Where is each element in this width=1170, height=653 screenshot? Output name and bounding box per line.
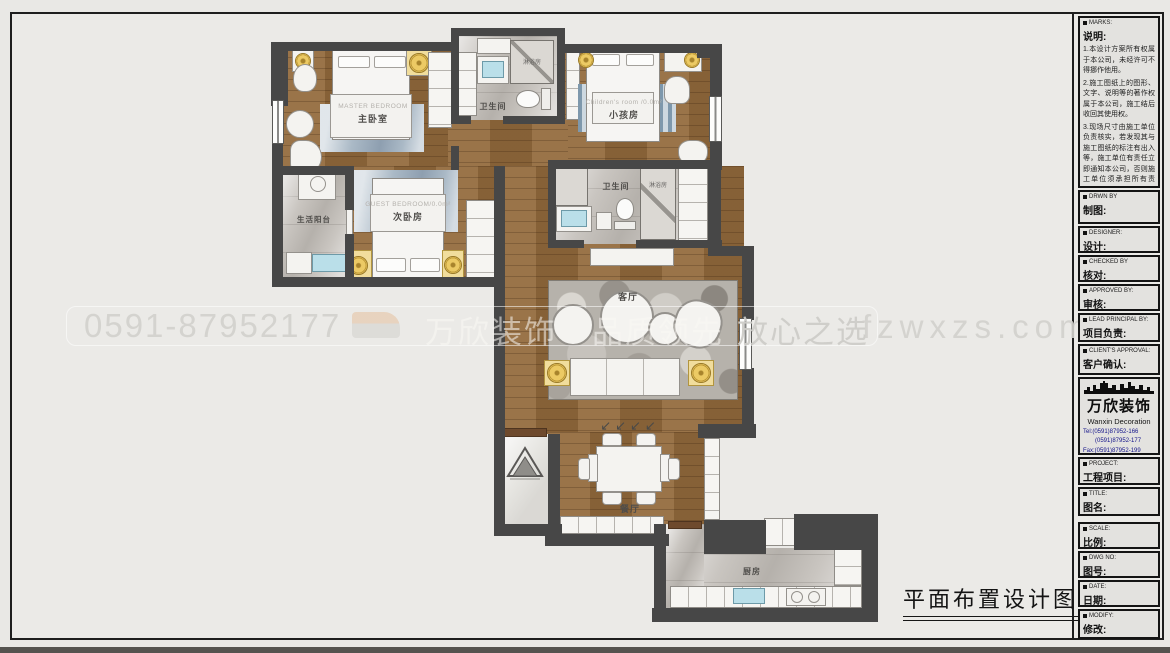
field-label-en: LEAD PRINCIPAL BY: bbox=[1089, 317, 1148, 323]
kitchen-counter bbox=[670, 586, 862, 608]
bath2-toilet-tank bbox=[614, 221, 636, 230]
children-chair bbox=[664, 76, 690, 104]
children-pillow bbox=[592, 54, 620, 66]
bullet-icon bbox=[1083, 527, 1087, 531]
drawing-sheet: ↙↙↙↙ bbox=[0, 0, 1170, 653]
wall-segment bbox=[451, 116, 471, 124]
window-bottom-edge bbox=[0, 647, 1170, 653]
living-lamp-icon bbox=[691, 363, 711, 383]
shower-room-2 bbox=[640, 166, 676, 240]
wall-segment bbox=[652, 608, 878, 622]
wall-segment bbox=[283, 42, 455, 51]
master-pillow bbox=[338, 56, 370, 68]
master-pillow bbox=[374, 56, 406, 68]
field-header: CHECKED BY bbox=[1083, 259, 1155, 265]
living-label: 客厅 bbox=[618, 290, 638, 303]
living-lamp-icon bbox=[547, 363, 567, 383]
wall-segment bbox=[704, 520, 766, 554]
titleblock-field-modify: MODIFY: 修改: bbox=[1078, 609, 1160, 639]
note-2: 2.施工图纸上的图形、文字、说明等的著作权属于本公司，施工结后收回其使用权。 bbox=[1083, 79, 1155, 121]
wall-segment bbox=[794, 514, 864, 550]
window bbox=[272, 100, 284, 144]
titleblock-field-dwg-no: DWG NO: 图号: bbox=[1078, 551, 1160, 578]
dining-chair bbox=[668, 458, 680, 480]
wall-segment bbox=[272, 42, 283, 102]
kitchen-tall-cabinet bbox=[834, 548, 862, 586]
wall-segment bbox=[560, 44, 712, 53]
balcony-cabinet bbox=[286, 252, 312, 274]
children-pillow bbox=[626, 54, 654, 66]
bullet-icon bbox=[1083, 492, 1087, 496]
dining-sideboard bbox=[560, 516, 664, 534]
dining-table bbox=[596, 446, 662, 492]
wall-segment bbox=[345, 166, 354, 210]
living-sofa bbox=[570, 358, 680, 396]
wall-segment bbox=[708, 160, 721, 248]
titleblock-field-scale: SCALE: 比例: bbox=[1078, 522, 1160, 549]
field-label-zh: 客户确认: bbox=[1083, 356, 1155, 371]
field-label-zh: 修改: bbox=[1083, 621, 1155, 636]
field-header: DESIGNER: bbox=[1083, 230, 1155, 236]
field-label-en: PROJECT: bbox=[1089, 461, 1118, 467]
bullet-icon bbox=[1083, 195, 1087, 199]
bath2-sink bbox=[561, 210, 587, 227]
marks-header: MARKS: bbox=[1083, 20, 1155, 26]
kitchen-label: 厨房 bbox=[743, 566, 761, 577]
field-label-en: DATE: bbox=[1089, 584, 1106, 590]
field-header: DATE: bbox=[1083, 584, 1155, 590]
field-header: CLIENT'S APPROVAL: bbox=[1083, 348, 1155, 354]
living-chair bbox=[552, 304, 594, 346]
titleblock-field-designer: DESIGNER: 设计: bbox=[1078, 226, 1160, 253]
bullet-icon bbox=[1083, 260, 1087, 264]
bath2-toilet-icon bbox=[616, 198, 634, 220]
skyline-logo-icon bbox=[1084, 381, 1154, 394]
shower1-label: 淋浴房 bbox=[523, 57, 541, 66]
entrance-arrow-icon bbox=[506, 446, 544, 482]
titleblock-field-client-approval: CLIENT'S APPROVAL: 客户确认: bbox=[1078, 344, 1160, 375]
bath1-label: 卫生间 bbox=[480, 101, 507, 112]
balcony-label: 生活阳台 bbox=[297, 214, 331, 225]
wall-segment bbox=[710, 44, 722, 98]
wall-segment bbox=[548, 160, 721, 169]
field-label-en: TITLE: bbox=[1089, 491, 1107, 497]
field-header: PROJECT: bbox=[1083, 461, 1155, 467]
titleblock-field-title: TITLE: 图名: bbox=[1078, 487, 1160, 516]
bath2-closet bbox=[678, 166, 708, 242]
field-header: MODIFY: bbox=[1083, 613, 1155, 619]
entry-door-threshold bbox=[503, 428, 547, 437]
guest-label: 次卧房 bbox=[393, 210, 423, 223]
marks-label-zh: 说明: bbox=[1083, 28, 1155, 43]
contact-lines: Tel:(0591)87952-166 (0591)87952-177 Fax:… bbox=[1083, 428, 1155, 455]
children-lamp-icon bbox=[578, 52, 594, 68]
field-label-en: APPROVED BY: bbox=[1089, 288, 1133, 294]
field-header: DRWN BY bbox=[1083, 194, 1155, 200]
master-side-table bbox=[286, 110, 314, 138]
master-chair bbox=[293, 64, 317, 92]
field-header: SCALE: bbox=[1083, 526, 1155, 532]
titleblock-field-drawn-by: DRWN BY 制图: bbox=[1078, 190, 1160, 224]
guest-lamp-icon bbox=[444, 256, 462, 274]
titleblock-field-project: PROJECT: 工程项目: bbox=[1078, 457, 1160, 485]
wall-segment bbox=[742, 246, 754, 320]
bullet-icon bbox=[1083, 289, 1087, 293]
wall-segment bbox=[272, 277, 505, 287]
master-label: 主卧室 bbox=[358, 112, 388, 125]
guest-pillow bbox=[376, 258, 406, 272]
master-wardrobe bbox=[428, 52, 452, 128]
children-label-en: Children's room /0.0m² bbox=[586, 99, 663, 106]
bath1-sink bbox=[482, 61, 504, 78]
wall-segment bbox=[545, 534, 669, 546]
washing-machine-drum bbox=[310, 176, 326, 192]
titleblock-field-approved-by: APPROVED BY: 审核: bbox=[1078, 284, 1160, 311]
bath2-niche bbox=[552, 166, 588, 206]
bath1-shelf bbox=[477, 38, 511, 54]
guest-label-en: GUEST BEDROOM/0.0m² bbox=[365, 201, 451, 208]
field-label-en: CHECKED BY bbox=[1089, 259, 1128, 265]
watermark-logo-icon bbox=[352, 312, 400, 338]
drawing-title-underline: 平面布置设计图 bbox=[903, 582, 1078, 621]
bullet-icon bbox=[1083, 349, 1087, 353]
titleblock-field-principal: LEAD PRINCIPAL BY: 项目负责: bbox=[1078, 313, 1160, 342]
wall-segment bbox=[862, 514, 878, 618]
field-label-zh: 比例: bbox=[1083, 534, 1155, 549]
titleblock-field-checked-by: CHECKED BY 核对: bbox=[1078, 255, 1160, 282]
dining-chair bbox=[602, 433, 622, 446]
stove-burner bbox=[791, 591, 803, 603]
dining-label: 餐厅 bbox=[620, 502, 640, 515]
window bbox=[709, 96, 722, 142]
bullet-icon bbox=[1083, 318, 1087, 322]
fax-line: Fax:(0591)87952-199 bbox=[1083, 447, 1155, 455]
guest-pillow bbox=[410, 258, 440, 272]
field-label-en: CLIENT'S APPROVAL: bbox=[1089, 348, 1150, 354]
bullet-icon bbox=[1083, 556, 1087, 560]
field-label-zh: 审核: bbox=[1083, 296, 1155, 311]
bath1-toilet-tank bbox=[541, 88, 551, 110]
field-label-en: MODIFY: bbox=[1089, 613, 1114, 619]
kitchen-window-cabinet bbox=[764, 518, 796, 546]
wall-segment bbox=[272, 142, 283, 286]
field-label-zh: 图号: bbox=[1083, 563, 1155, 578]
titleblock-marks: MARKS: 说明: 1.本设计方案所有权属于本公司，未经许可不得挪作他用。 2… bbox=[1078, 16, 1160, 188]
marks-label-en: MARKS: bbox=[1089, 20, 1112, 26]
titleblock-divider-line bbox=[1072, 12, 1074, 640]
field-header: TITLE: bbox=[1083, 491, 1155, 497]
wall-segment bbox=[654, 524, 666, 618]
kitchen-sink bbox=[733, 588, 765, 604]
sliding-door-arrows-icon: ↙↙↙↙ bbox=[600, 418, 660, 434]
stove-burner bbox=[808, 591, 820, 603]
field-header: DWG NO: bbox=[1083, 555, 1155, 561]
tel-line-2: (0591)87952-177 bbox=[1083, 437, 1155, 446]
wall-segment bbox=[742, 368, 754, 426]
bath2-label: 卫生间 bbox=[603, 181, 630, 192]
bullet-icon bbox=[1083, 21, 1087, 25]
note-3: 3.现场尺寸由施工单位负责核实，若发现其与施工图纸的标注有出入等，施工单位有责任… bbox=[1083, 123, 1155, 189]
children-label: 小孩房 bbox=[609, 108, 639, 121]
window bbox=[739, 318, 752, 370]
wall-segment bbox=[451, 28, 564, 36]
bullet-icon bbox=[1083, 614, 1087, 618]
field-label-zh: 设计: bbox=[1083, 238, 1155, 253]
bath2-laundry bbox=[596, 212, 612, 230]
wall-segment bbox=[494, 166, 505, 528]
field-label-zh: 工程项目: bbox=[1083, 469, 1155, 484]
brand-name-en: Wanxin Decoration bbox=[1083, 417, 1155, 426]
field-label-zh: 制图: bbox=[1083, 202, 1155, 217]
field-header: APPROVED BY: bbox=[1083, 288, 1155, 294]
field-label-en: DWG NO: bbox=[1089, 555, 1116, 561]
dining-chair bbox=[636, 433, 656, 446]
field-header: LEAD PRINCIPAL BY: bbox=[1083, 317, 1155, 323]
wall-segment bbox=[451, 30, 459, 124]
shower2-label: 淋浴房 bbox=[649, 180, 667, 189]
master-lamp-icon bbox=[409, 53, 429, 73]
title-block: MARKS: 说明: 1.本设计方案所有权属于本公司，未经许可不得挪作他用。 2… bbox=[1078, 16, 1160, 639]
field-label-en: SCALE: bbox=[1089, 526, 1110, 532]
wall-segment bbox=[548, 240, 584, 248]
company-logo-block: 万欣装饰 Wanxin Decoration Tel:(0591)87952-1… bbox=[1078, 377, 1160, 455]
wall-segment bbox=[451, 146, 459, 170]
wall-segment bbox=[698, 424, 756, 438]
note-1: 1.本设计方案所有权属于本公司，未经许可不得挪作他用。 bbox=[1083, 45, 1155, 77]
kitchen-door-threshold bbox=[668, 521, 702, 529]
bath1-toilet-icon bbox=[516, 90, 540, 108]
wall-segment bbox=[548, 434, 560, 534]
field-label-en: DESIGNER: bbox=[1089, 230, 1122, 236]
field-label-zh: 图名: bbox=[1083, 499, 1155, 514]
bullet-icon bbox=[1083, 231, 1087, 235]
titleblock-field-date: DATE: 日期: bbox=[1078, 580, 1160, 607]
tel-line-1: Tel:(0591)87952-166 bbox=[1083, 428, 1155, 437]
bullet-icon bbox=[1083, 462, 1087, 466]
wall-segment bbox=[503, 116, 565, 124]
bullet-icon bbox=[1083, 585, 1087, 589]
wall-segment bbox=[548, 162, 556, 248]
field-label-en: DRWN BY bbox=[1089, 194, 1117, 200]
balcony-basin bbox=[312, 254, 346, 272]
field-label-zh: 核对: bbox=[1083, 267, 1155, 282]
wall-segment bbox=[272, 166, 354, 175]
master-label-en: MASTER BEDROOM bbox=[338, 103, 407, 110]
balcony-door-leaf bbox=[346, 208, 353, 236]
wall-segment bbox=[557, 28, 565, 124]
dining-chair bbox=[578, 458, 590, 480]
field-label-zh: 日期: bbox=[1083, 592, 1155, 607]
brand-name-zh: 万欣装饰 bbox=[1083, 395, 1155, 416]
drawing-title: 平面布置设计图 bbox=[903, 582, 1078, 617]
field-label-zh: 项目负责: bbox=[1083, 325, 1155, 340]
hall-console bbox=[590, 248, 674, 266]
dining-tall-cabinet bbox=[704, 438, 720, 520]
